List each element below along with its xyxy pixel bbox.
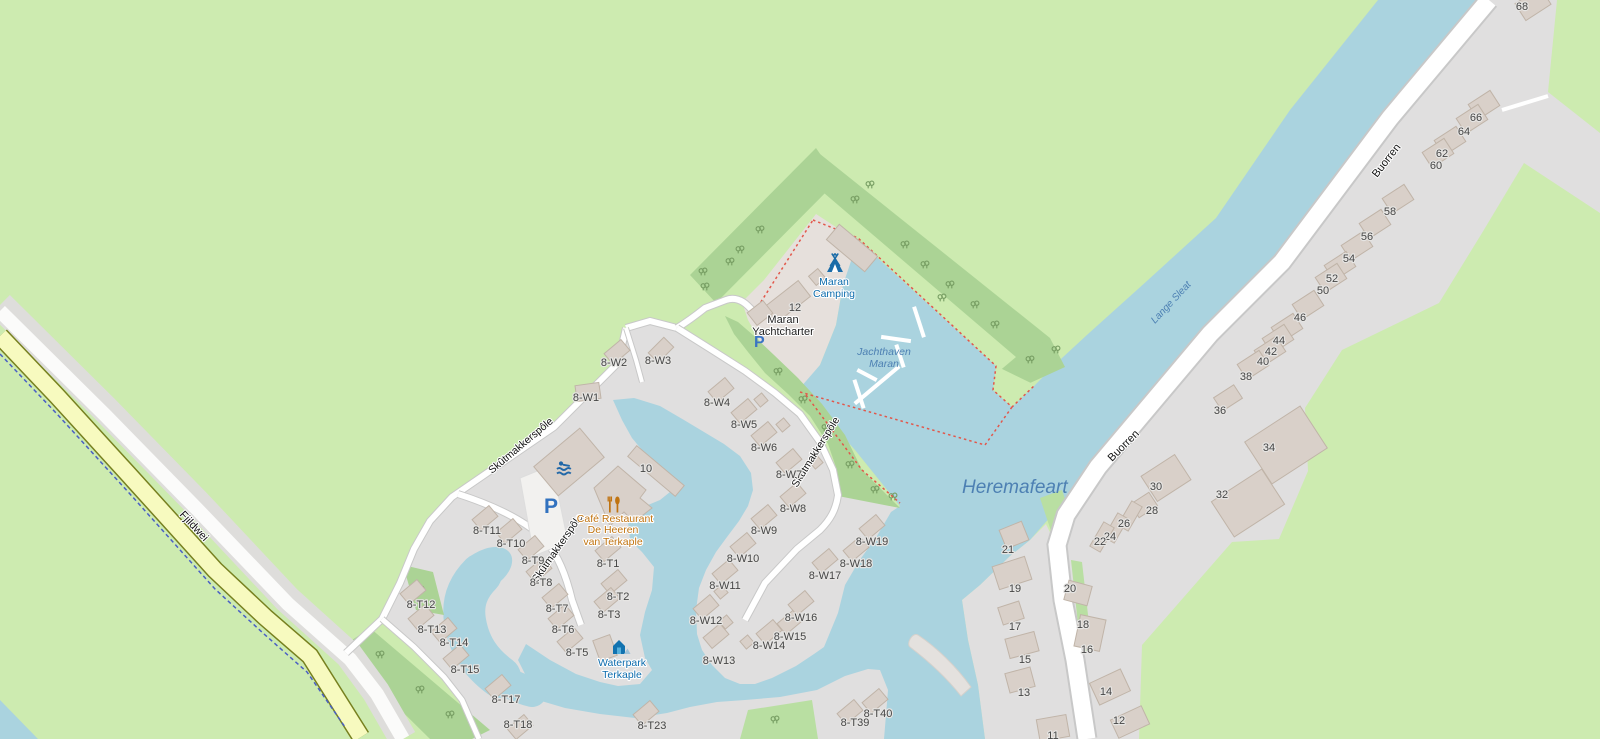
svg-text:8-T14: 8-T14: [440, 637, 469, 649]
svg-text:56: 56: [1361, 231, 1373, 243]
svg-text:De Heeren: De Heeren: [588, 524, 639, 536]
svg-text:8-T17: 8-T17: [492, 694, 521, 706]
svg-text:8-T8: 8-T8: [530, 577, 553, 589]
svg-text:8-W15: 8-W15: [774, 631, 806, 643]
svg-text:8-T7: 8-T7: [546, 603, 569, 615]
svg-text:8-W17: 8-W17: [809, 570, 841, 582]
svg-text:8-T1: 8-T1: [597, 558, 620, 570]
svg-text:8-W4: 8-W4: [704, 397, 730, 409]
svg-text:52: 52: [1326, 273, 1338, 285]
svg-text:16: 16: [1081, 644, 1093, 656]
svg-text:12: 12: [789, 302, 801, 314]
svg-text:38: 38: [1240, 371, 1252, 383]
svg-text:8-T18: 8-T18: [504, 719, 533, 731]
svg-text:8-W18: 8-W18: [840, 558, 872, 570]
svg-text:8-T13: 8-T13: [418, 624, 447, 636]
svg-text:8-T15: 8-T15: [451, 664, 480, 676]
svg-text:11: 11: [1047, 730, 1058, 739]
svg-text:8-W3: 8-W3: [645, 355, 671, 367]
svg-text:van Terkaple: van Terkaple: [583, 536, 643, 548]
svg-text:22: 22: [1094, 536, 1106, 548]
svg-text:8-W8: 8-W8: [780, 503, 806, 515]
svg-text:15: 15: [1019, 654, 1031, 666]
svg-text:P: P: [754, 334, 765, 351]
svg-text:14: 14: [1100, 686, 1112, 698]
svg-text:8-W1: 8-W1: [573, 392, 599, 404]
svg-text:Waterpark: Waterpark: [598, 657, 647, 669]
svg-text:8-W5: 8-W5: [731, 419, 757, 431]
svg-text:8-T10: 8-T10: [497, 538, 526, 550]
svg-text:10: 10: [640, 463, 652, 475]
svg-text:21: 21: [1002, 544, 1014, 556]
svg-text:8-T2: 8-T2: [607, 591, 630, 603]
svg-text:Maran: Maran: [767, 314, 798, 326]
svg-text:8-W9: 8-W9: [751, 525, 777, 537]
svg-text:8-T23: 8-T23: [638, 720, 667, 732]
svg-text:8-T12: 8-T12: [407, 599, 436, 611]
svg-text:20: 20: [1064, 583, 1076, 595]
svg-text:68: 68: [1516, 1, 1528, 13]
svg-text:Heremafeart: Heremafeart: [962, 477, 1068, 498]
svg-text:P: P: [544, 495, 558, 518]
svg-text:66: 66: [1470, 112, 1482, 124]
svg-text:8-T3: 8-T3: [598, 609, 621, 621]
svg-text:8-T9: 8-T9: [522, 555, 545, 567]
svg-text:50: 50: [1317, 285, 1329, 297]
svg-text:64: 64: [1458, 126, 1470, 138]
svg-text:Camping: Camping: [813, 288, 855, 300]
svg-text:8-W2: 8-W2: [601, 357, 627, 369]
svg-text:8-T5: 8-T5: [566, 647, 589, 659]
svg-text:8-W10: 8-W10: [727, 553, 759, 565]
svg-text:12: 12: [1113, 715, 1125, 727]
svg-text:8-W12: 8-W12: [690, 615, 722, 627]
svg-text:8-T39: 8-T39: [841, 717, 870, 729]
svg-text:8-T11: 8-T11: [473, 525, 501, 537]
svg-text:8-T6: 8-T6: [552, 624, 575, 636]
svg-text:Terkaple: Terkaple: [602, 669, 642, 681]
svg-text:8-W6: 8-W6: [751, 442, 777, 454]
svg-text:8-W13: 8-W13: [703, 655, 735, 667]
svg-text:Jachthaven: Jachthaven: [856, 346, 911, 358]
svg-text:8-W19: 8-W19: [856, 536, 888, 548]
svg-text:36: 36: [1214, 405, 1226, 417]
svg-text:Maran: Maran: [869, 358, 899, 370]
svg-text:30: 30: [1150, 481, 1162, 493]
svg-text:60: 60: [1430, 160, 1442, 172]
svg-text:40: 40: [1257, 356, 1269, 368]
svg-text:19: 19: [1009, 583, 1021, 595]
svg-text:62: 62: [1436, 148, 1448, 160]
svg-text:28: 28: [1146, 505, 1158, 517]
svg-text:32: 32: [1216, 489, 1228, 501]
svg-text:46: 46: [1294, 312, 1306, 324]
svg-text:26: 26: [1118, 518, 1130, 530]
svg-text:13: 13: [1018, 687, 1030, 699]
svg-text:Maran: Maran: [819, 276, 849, 288]
svg-text:34: 34: [1263, 442, 1275, 454]
svg-text:8-W11: 8-W11: [709, 580, 741, 592]
svg-text:8-W16: 8-W16: [785, 612, 817, 624]
svg-text:58: 58: [1384, 206, 1396, 218]
svg-text:18: 18: [1077, 619, 1089, 631]
svg-text:17: 17: [1009, 621, 1021, 633]
svg-text:54: 54: [1343, 253, 1355, 265]
svg-text:8-W7: 8-W7: [776, 469, 802, 481]
